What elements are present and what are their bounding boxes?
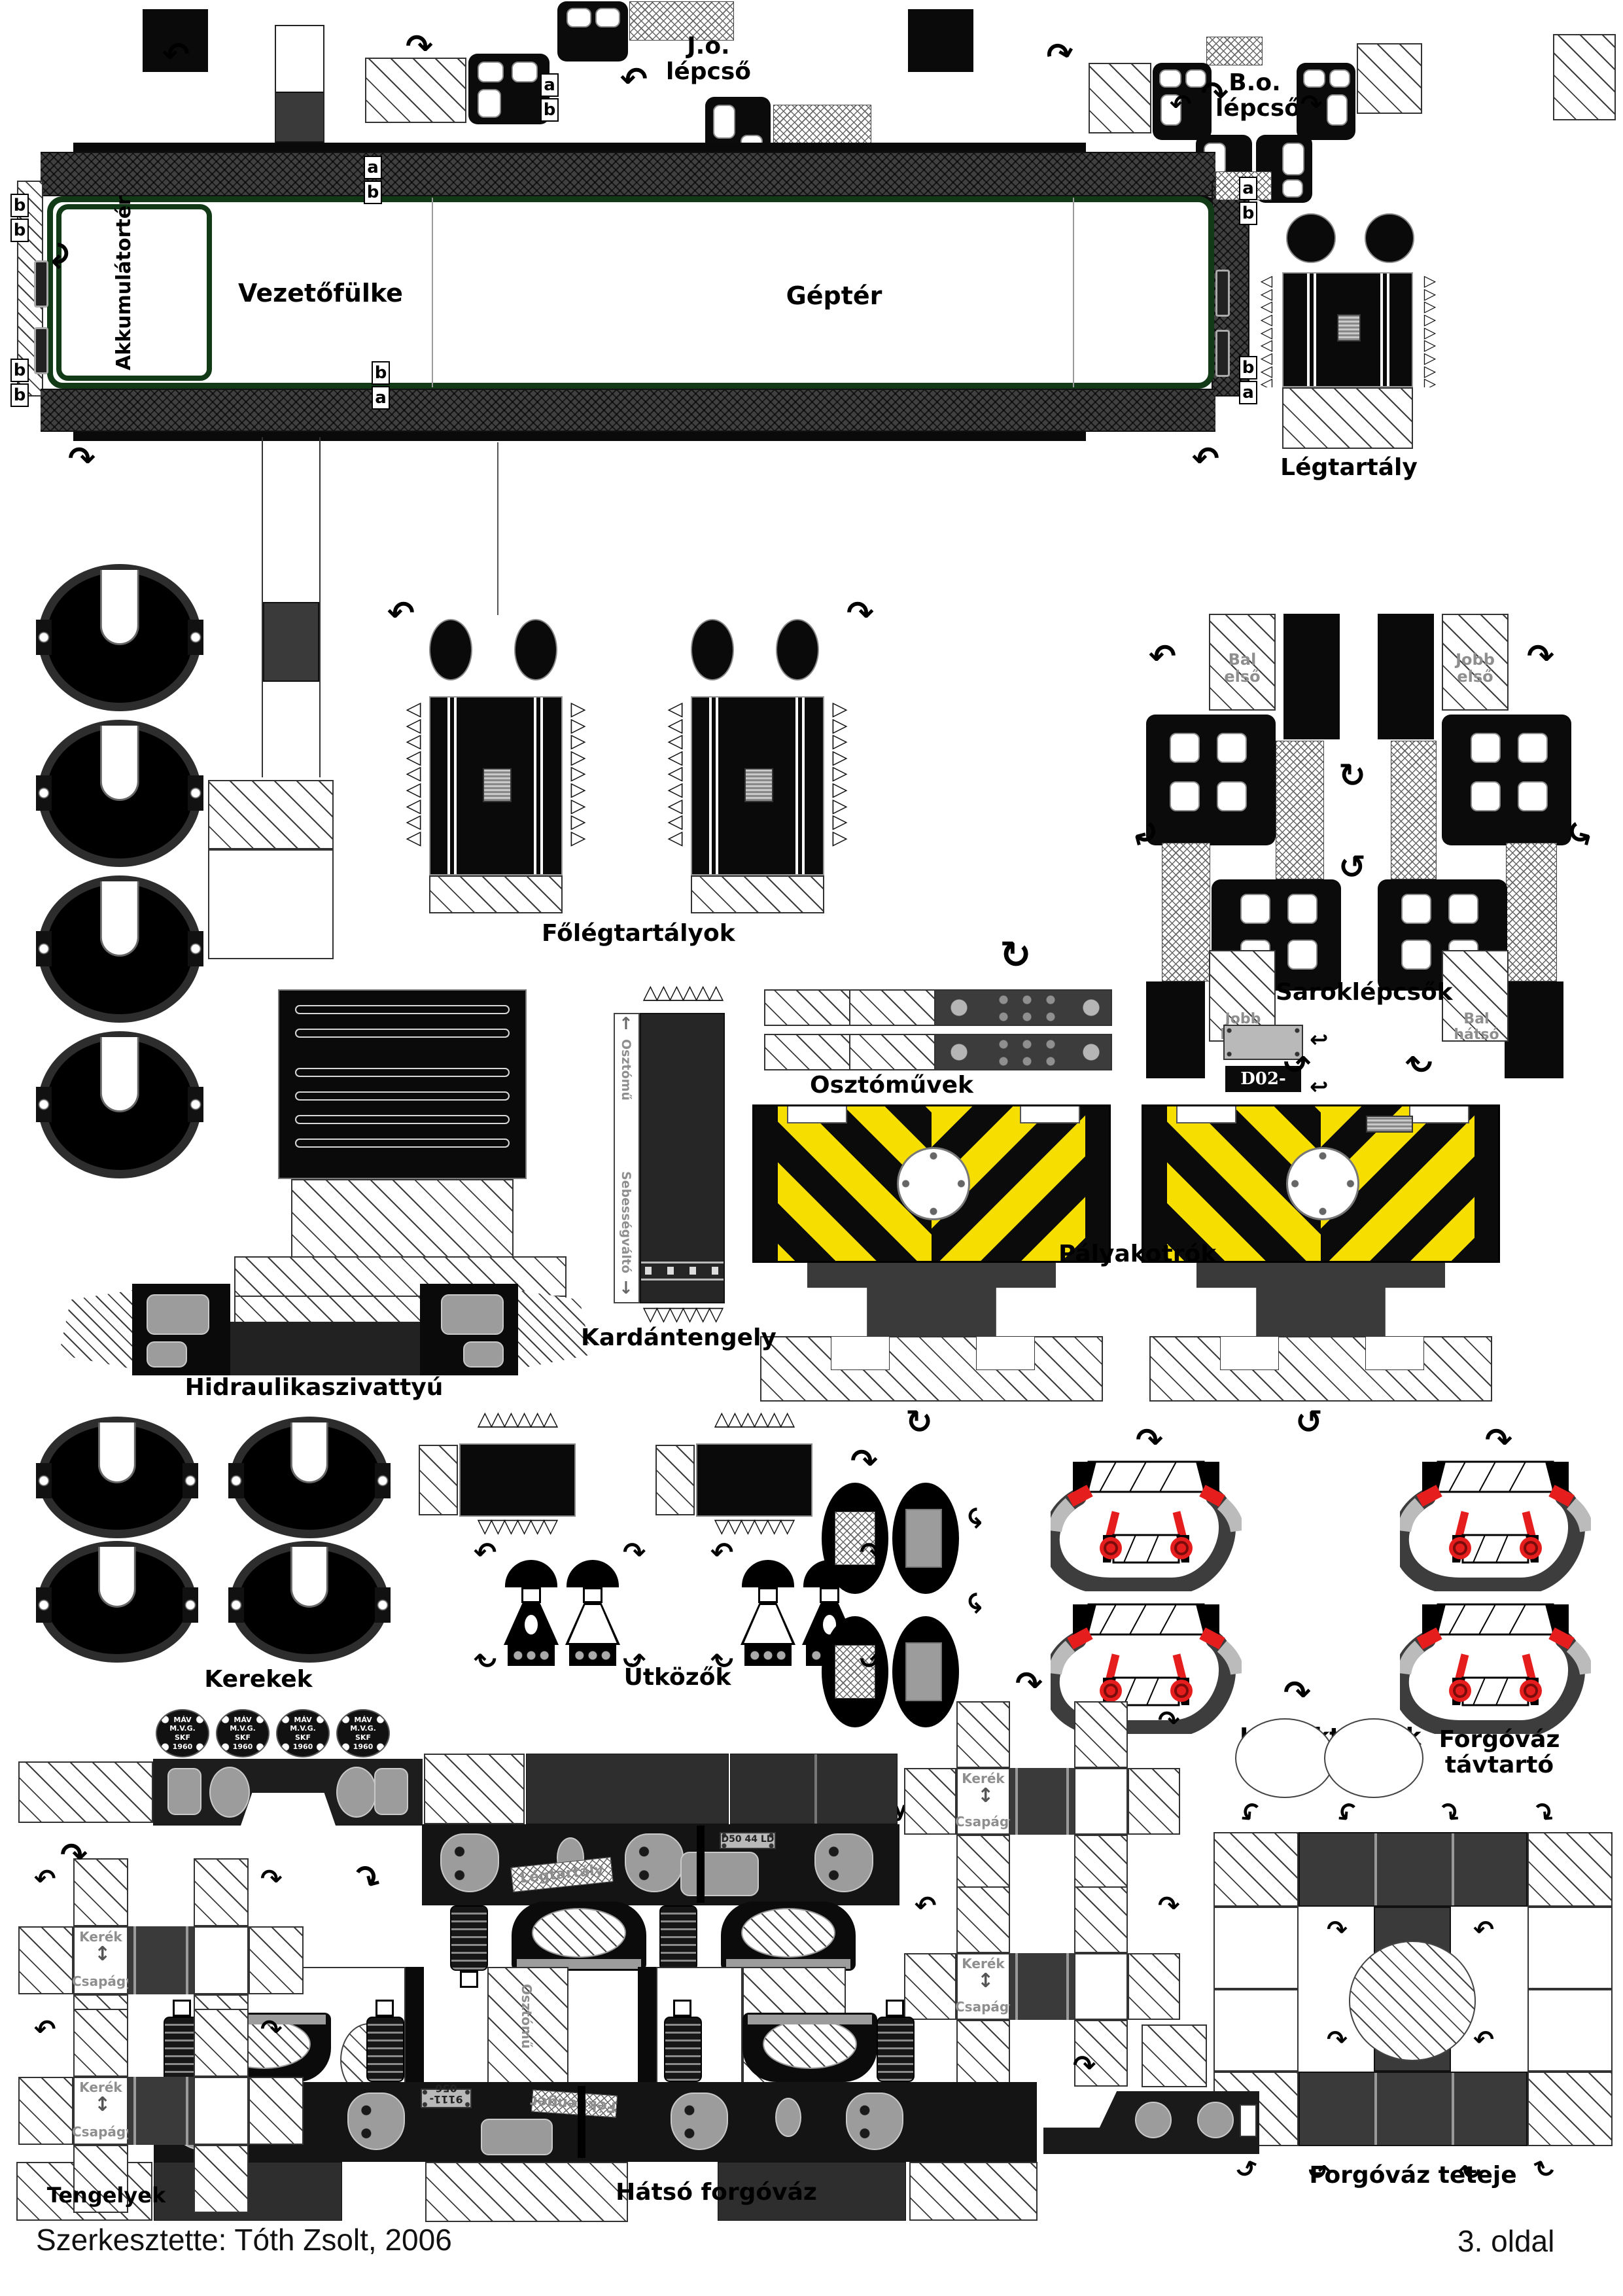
fold-arrow-icon: ↶ <box>623 1644 646 1671</box>
fold-arrow-icon: ↷ <box>710 1644 733 1671</box>
frame-glue-tab <box>18 1761 153 1823</box>
frame-end-tab <box>1240 2104 1257 2137</box>
fold-arrow-icon: ↶ <box>1331 1797 1365 1831</box>
fold-arrow-icon: ↶ <box>965 1592 991 1614</box>
hole <box>1170 733 1200 763</box>
fold-line <box>497 442 498 615</box>
corner-step-riser <box>1283 614 1340 739</box>
hatch <box>765 991 850 1025</box>
grrect <box>463 1341 504 1368</box>
spring-stem <box>673 2000 691 2017</box>
label-forgovaz-tavtarto: Forgóváz távtartó <box>1434 1727 1565 1778</box>
bogie-top-cell <box>1527 1832 1613 1907</box>
wl <box>1387 274 1389 386</box>
bogie-top-cell <box>1527 1989 1613 2072</box>
wheel-disc-part <box>38 1031 201 1178</box>
fold-arrow-icon: ↶ <box>387 597 415 629</box>
glue-spikes-up: △△△△△△ <box>695 1409 812 1441</box>
noise <box>483 768 512 802</box>
label-axle-plate: D50 44 LD <box>720 1832 776 1849</box>
wl <box>802 698 805 874</box>
fold-arrow-icon: ↶ <box>1170 92 1192 118</box>
glue-spikes-left: ◁ ◁ ◁ ◁ ◁ ◁ ◁ ◁ ◁ <box>661 701 689 872</box>
axle-tab <box>194 2009 249 2077</box>
wl <box>795 698 798 874</box>
track-clearer-glue <box>1149 1336 1492 1402</box>
white-box-part <box>208 849 334 959</box>
wtab <box>36 931 52 966</box>
bdome <box>567 1560 619 1587</box>
arr: ↕ <box>94 2095 111 2115</box>
main-air-tank-part <box>691 696 824 875</box>
fold-arrow-icon: ↷ <box>1300 92 1323 118</box>
tank-glue-tab <box>429 875 563 913</box>
fold-arrow-icon: ↷ <box>406 30 433 63</box>
axle-cell <box>249 1926 304 1994</box>
corner-glue-tab <box>1553 34 1616 120</box>
circle <box>1100 1680 1122 1702</box>
wl <box>1452 2073 1454 2145</box>
fold-arrow-icon: ↷ <box>1526 1797 1560 1831</box>
glue-tab-b: b <box>540 98 559 122</box>
spring-stem <box>460 1971 478 1988</box>
slat <box>295 1029 510 1038</box>
glue-tab-b: b <box>364 181 382 204</box>
fold-arrow-icon: ↶ <box>620 63 648 96</box>
axlebox-arch <box>742 2013 877 2082</box>
roof-hatch-part <box>908 9 973 72</box>
wht <box>787 1105 847 1123</box>
tank-end-disc <box>776 619 819 680</box>
down-arrow-icon: ↓ <box>619 1280 633 1297</box>
fold-arrow-icon: ↷ <box>1485 1424 1512 1457</box>
track-clearer-base <box>1196 1263 1445 1336</box>
rotate-arrow-icon: ↻ <box>1000 936 1032 974</box>
spring <box>664 2017 702 2082</box>
div <box>241 1793 336 1826</box>
glue-box <box>208 780 334 849</box>
arr: ↕ <box>94 1945 111 1964</box>
aell <box>763 2019 857 2069</box>
hole <box>1471 781 1501 811</box>
axlebox-arch <box>721 1901 856 1971</box>
circle <box>1170 1537 1193 1559</box>
frame-glue-tab <box>1142 2024 1207 2087</box>
glue-spikes-up: △△△△△△ <box>458 1409 576 1441</box>
rect <box>1438 1462 1553 1492</box>
axle-cell-dark <box>1010 1768 1074 1835</box>
bneck <box>521 1587 541 1603</box>
axle-cell <box>194 1926 249 1994</box>
up-arrow-icon: ↑ <box>619 1016 633 1033</box>
sbar <box>1143 1106 1167 1261</box>
circle <box>1449 1537 1471 1559</box>
wheel-disc-part <box>38 720 201 867</box>
hydraulic-pump-part <box>59 1284 592 1375</box>
gray: Csapágy <box>955 1815 1010 1829</box>
circle <box>1449 1680 1471 1702</box>
noise <box>744 768 773 802</box>
fold-arrow-icon: ↷ <box>1136 1424 1163 1457</box>
ccirc <box>1286 1147 1359 1220</box>
axle-cell-dark <box>128 1926 194 1994</box>
wl <box>814 1754 817 1824</box>
slat <box>295 1139 510 1148</box>
fold-arrow-icon: ↷ <box>1405 1044 1433 1077</box>
fold-bar <box>638 1967 656 2085</box>
uslot <box>100 1037 139 1112</box>
div <box>481 2119 553 2155</box>
div <box>641 1262 724 1263</box>
step-mesh-strip <box>1391 741 1437 879</box>
wheel-part <box>38 1541 196 1663</box>
wtab <box>36 775 52 811</box>
author-credit: Szerkesztette: Tóth Zsolt, 2006 <box>36 2222 452 2257</box>
wtab <box>188 620 203 655</box>
bearing-badge: MÁV M.V.G. SKF 1960 <box>276 1709 330 1757</box>
wtab <box>36 1587 52 1623</box>
page-number: 3. oldal <box>1457 2223 1554 2259</box>
fold-arrow-icon: ↶ <box>1192 442 1219 475</box>
rect <box>1463 1535 1528 1563</box>
corner-step-plate <box>1146 715 1276 845</box>
wheel-part <box>230 1541 389 1663</box>
hose-clamp-part <box>822 1483 960 1594</box>
wl <box>1307 274 1310 386</box>
hole <box>1170 781 1200 811</box>
fold-arrow-icon: ↶ <box>1231 2149 1261 2181</box>
circle <box>1520 1537 1542 1559</box>
track-clearer-base <box>807 1263 1056 1336</box>
rect <box>1463 1678 1528 1705</box>
wheel-disc-part <box>38 564 201 711</box>
uslot <box>100 881 139 957</box>
label-sebessegvalto: Sebességváltó <box>619 1171 633 1289</box>
label-hidraulikaszivattyu: Hidraulikaszivattyú <box>150 1375 478 1401</box>
corner-step-riser <box>1378 614 1434 739</box>
bbase <box>744 1645 792 1666</box>
hole <box>1217 781 1247 811</box>
div <box>905 1642 942 1701</box>
xs: D50 44 LD <box>721 1835 775 1845</box>
hole <box>512 62 538 82</box>
fold-arrow-icon: ↶ <box>965 1507 991 1529</box>
div <box>1220 1336 1279 1370</box>
air-hose-part <box>1400 1457 1591 1591</box>
wtab <box>228 1587 244 1623</box>
gearbox-strip-part <box>764 1034 1112 1070</box>
step-plate <box>557 1 628 62</box>
track-clearer-glue <box>760 1336 1103 1402</box>
fold-arrow-icon: ↷ <box>860 1539 882 1566</box>
div <box>935 991 1111 1025</box>
label-osztomuvek: Osztóművek <box>810 1073 973 1099</box>
bogie-top-bar <box>1299 1832 1527 1907</box>
wl <box>133 1926 136 1994</box>
fold-arrow-icon: ↷ <box>60 1839 88 1871</box>
bogie-top-cell <box>1527 2072 1613 2146</box>
fold-arrow-icon: ↷ <box>1529 2149 1559 2181</box>
buffer-glue-tab <box>419 1445 458 1515</box>
hole <box>567 8 591 27</box>
bogie-top-cell <box>1213 1832 1299 1907</box>
wl <box>1066 1768 1069 1835</box>
body-edge-bar <box>73 432 1086 441</box>
step-glue-tab <box>365 58 466 123</box>
fold-bar <box>406 1967 424 2085</box>
gray: Csapágy <box>72 2125 128 2140</box>
gell <box>336 1767 377 1818</box>
circle <box>1170 1680 1193 1702</box>
wl <box>534 698 536 874</box>
wl <box>1314 274 1316 386</box>
wtab <box>188 931 203 966</box>
wtab <box>188 1087 203 1122</box>
div <box>976 1336 1035 1370</box>
spring <box>366 2017 404 2082</box>
hole <box>1282 179 1303 198</box>
step-mesh-strip <box>1506 843 1557 981</box>
grrect <box>147 1341 187 1368</box>
tank-end-disc <box>691 619 734 680</box>
rect <box>1438 1604 1553 1634</box>
bdome <box>505 1560 557 1587</box>
tank-end-disc <box>514 619 557 680</box>
label-legtartaly-small: Légtartály <box>510 1857 613 1892</box>
bbody <box>565 1603 620 1645</box>
path <box>1055 1646 1070 1674</box>
path <box>1404 1504 1420 1531</box>
aell <box>532 1908 626 1958</box>
label-saroklepcsok: Saroklépcsők <box>1276 980 1446 1006</box>
tank-end-disc <box>1365 213 1414 263</box>
gray: Bal hátsó <box>1440 1012 1512 1043</box>
fold-arrow-icon: ↷ <box>1327 2027 1348 2052</box>
wl <box>454 698 457 874</box>
gray: Csapágy <box>72 1975 128 1989</box>
div <box>1365 1336 1424 1370</box>
grrect <box>167 1768 201 1815</box>
hole <box>1159 69 1181 88</box>
hole <box>1401 894 1431 924</box>
label-osztomu: Osztómű <box>619 1039 633 1144</box>
buffer-plate <box>696 1443 812 1517</box>
gray: Csapágy <box>955 2000 1010 2015</box>
front-bogie-frame: Légtartály D50 44 LD <box>422 1824 899 1905</box>
axle-cell <box>904 1768 956 1835</box>
axle-cell: Kerék ↕ Csapágy <box>956 1953 1010 2020</box>
wl <box>1452 1833 1454 1905</box>
path <box>1404 1646 1420 1674</box>
axle-cell: Kerék ↕ Csapágy <box>73 2077 128 2145</box>
slat <box>295 1115 510 1124</box>
slat <box>295 1068 510 1077</box>
tank-end-disc <box>429 619 472 680</box>
hole <box>1518 733 1548 763</box>
corner-step-riser <box>1505 981 1563 1078</box>
wtab <box>375 1463 391 1498</box>
corner-step-tab-jobb-elso: Jobb első <box>1442 614 1509 711</box>
pump-glue-column <box>291 1179 514 1258</box>
bogie-top-cell <box>1213 1989 1299 2072</box>
fold-line <box>1073 198 1074 387</box>
wl <box>186 1926 188 1994</box>
axle-tab <box>956 2020 1010 2087</box>
body-edge-bar <box>73 143 1086 152</box>
rotate-arrow-icon: ↺ <box>1295 1405 1323 1438</box>
spring <box>877 2017 915 2082</box>
axle-tab <box>956 1886 1010 1953</box>
hook-arrow-icon: ↩ <box>1310 1076 1329 1098</box>
circle <box>1100 1537 1122 1559</box>
hatch <box>850 1035 935 1069</box>
hatch <box>765 1035 850 1069</box>
pivot-circle <box>1349 1941 1476 2061</box>
label-jo-lepcso: J.o. lépcső <box>659 34 758 85</box>
spring-stem <box>173 2000 191 2017</box>
buffer-plate <box>459 1443 576 1517</box>
radiator-grille-part <box>278 989 527 1179</box>
gblob <box>625 1833 684 1892</box>
hole <box>1287 894 1318 924</box>
axle-tab <box>1074 1886 1128 1953</box>
spring <box>659 1905 697 1971</box>
bbase <box>569 1645 616 1666</box>
axle-cell: Kerék ↕ Csapágy <box>956 1768 1010 1835</box>
fold-arrow-icon: ↷ <box>68 442 96 475</box>
blk <box>420 1284 518 1375</box>
fold-arrow-icon: ↷ <box>1459 2155 1481 2181</box>
bbody <box>741 1603 795 1645</box>
gblob <box>671 2093 728 2150</box>
rotate-arrow-icon: ↻ <box>1338 759 1366 792</box>
main-air-tank-part <box>429 696 563 875</box>
circle <box>1520 1680 1542 1702</box>
div <box>831 1336 890 1370</box>
label-forgovaz-teteje: Forgóváz teteje <box>1308 2163 1518 2189</box>
fold-line <box>432 198 433 387</box>
fold-arrow-icon: ↶ <box>1308 2155 1331 2181</box>
div <box>697 1826 705 1903</box>
axle-cell <box>249 2077 304 2145</box>
bearing-badge: MÁV M.V.G. SKF 1960 <box>216 1709 270 1757</box>
step-mesh-strip <box>1276 741 1324 879</box>
axle-cell <box>1074 1768 1128 1835</box>
bogie-spacer-disc <box>1324 1718 1423 1798</box>
fold-arrow-icon: ↷ <box>1432 1797 1465 1831</box>
bearing-badge: MÁV M.V.G. SKF 1960 <box>156 1709 209 1757</box>
papercraft-sheet: ↶ J.o. lépcső ↷ ↷ B.o. lépcső ↶ ↷ a b Ak… <box>0 0 1623 2296</box>
label-vezetofulke: Vezetőfülke <box>216 280 425 307</box>
glue-tab-b: b <box>10 194 29 217</box>
axle-tab <box>194 1858 249 1926</box>
uslot <box>100 726 139 801</box>
gblob <box>347 2093 405 2150</box>
door-hinge <box>1215 270 1230 317</box>
fold-arrow-icon: ↷ <box>1043 35 1077 73</box>
label-kerekek: Kerekek <box>193 1667 324 1693</box>
air-hose-part <box>1051 1457 1242 1591</box>
rect <box>1113 1535 1179 1563</box>
fold-arrow-icon: ↶ <box>162 38 190 71</box>
wl <box>186 2077 188 2145</box>
hole <box>1329 69 1350 88</box>
label-legtartaly: Légtartály <box>1270 455 1427 481</box>
div <box>641 1279 724 1280</box>
div <box>935 1035 1111 1069</box>
fold-arrow-icon: ↷ <box>1015 1667 1043 1700</box>
rect <box>1089 1462 1204 1492</box>
bbody <box>504 1603 559 1645</box>
door-hinge <box>1215 330 1230 377</box>
bogie-top-bar <box>1299 2072 1527 2146</box>
fold-arrow-icon: ↶ <box>860 1644 882 1671</box>
wtab <box>36 620 52 655</box>
sbar <box>754 1106 778 1261</box>
bdome <box>742 1560 794 1587</box>
hatch <box>850 991 935 1025</box>
glue-spikes-right: ▷ ▷ ▷ ▷ ▷ ▷ ▷ ▷ ▷ <box>826 701 854 872</box>
rect <box>1089 1604 1204 1634</box>
slat <box>295 1005 510 1014</box>
fold-arrow-icon: ↷ <box>1201 77 1229 110</box>
bneck <box>583 1587 602 1603</box>
bogie-top-cell <box>1527 1907 1613 1989</box>
fold-arrow-icon: ↷ <box>1158 1708 1180 1734</box>
wtab <box>183 1463 198 1498</box>
slat <box>295 1091 510 1101</box>
axle-cell: Kerék ↕ Csapágy <box>73 1926 128 1994</box>
hole <box>1401 940 1431 970</box>
bogie-top-cell <box>1213 1907 1299 1989</box>
wl <box>1015 1953 1018 2020</box>
arr: ↕ <box>977 1786 994 1806</box>
bogie-fold-strip: Osztómű <box>487 1967 568 2085</box>
path <box>1055 1504 1070 1531</box>
axle-cell-dark <box>128 2077 194 2145</box>
axle-cell <box>904 1953 956 2020</box>
wl <box>1380 274 1383 386</box>
fold-arrow-icon: ↶ <box>710 1539 733 1566</box>
hole <box>1471 733 1501 763</box>
gblob <box>846 2093 903 2150</box>
label-palyakotrok: Pályakotrók <box>1058 1242 1196 1267</box>
fold-arrow-icon: ↶ <box>34 1866 56 1892</box>
wl <box>133 2077 136 2145</box>
axle-cell <box>18 2077 73 2145</box>
axle-cell <box>1128 1953 1180 2020</box>
wheel-part <box>38 1417 196 1538</box>
glue-tab-b: b <box>1239 356 1257 380</box>
label-fekhenger: Fékhenger <box>531 2090 618 2118</box>
wl <box>716 698 718 874</box>
hole <box>478 62 504 82</box>
axle-tab <box>194 2145 249 2213</box>
div <box>680 1852 759 1896</box>
fold-arrow-icon: ↷ <box>846 597 874 629</box>
buffer-body-part <box>565 1560 620 1666</box>
tank-end-disc <box>1286 213 1336 263</box>
fold-arrow-icon: ↷ <box>260 1866 283 1892</box>
grrect <box>147 1294 209 1335</box>
dk <box>230 1322 420 1375</box>
wheel-disc-part <box>38 875 201 1023</box>
hole <box>713 105 735 139</box>
cardan-shaft-part <box>640 1013 725 1303</box>
hole <box>1287 940 1318 970</box>
air-tank-part <box>1282 272 1413 387</box>
fold-arrow-icon: ↷ <box>1158 1893 1180 1919</box>
